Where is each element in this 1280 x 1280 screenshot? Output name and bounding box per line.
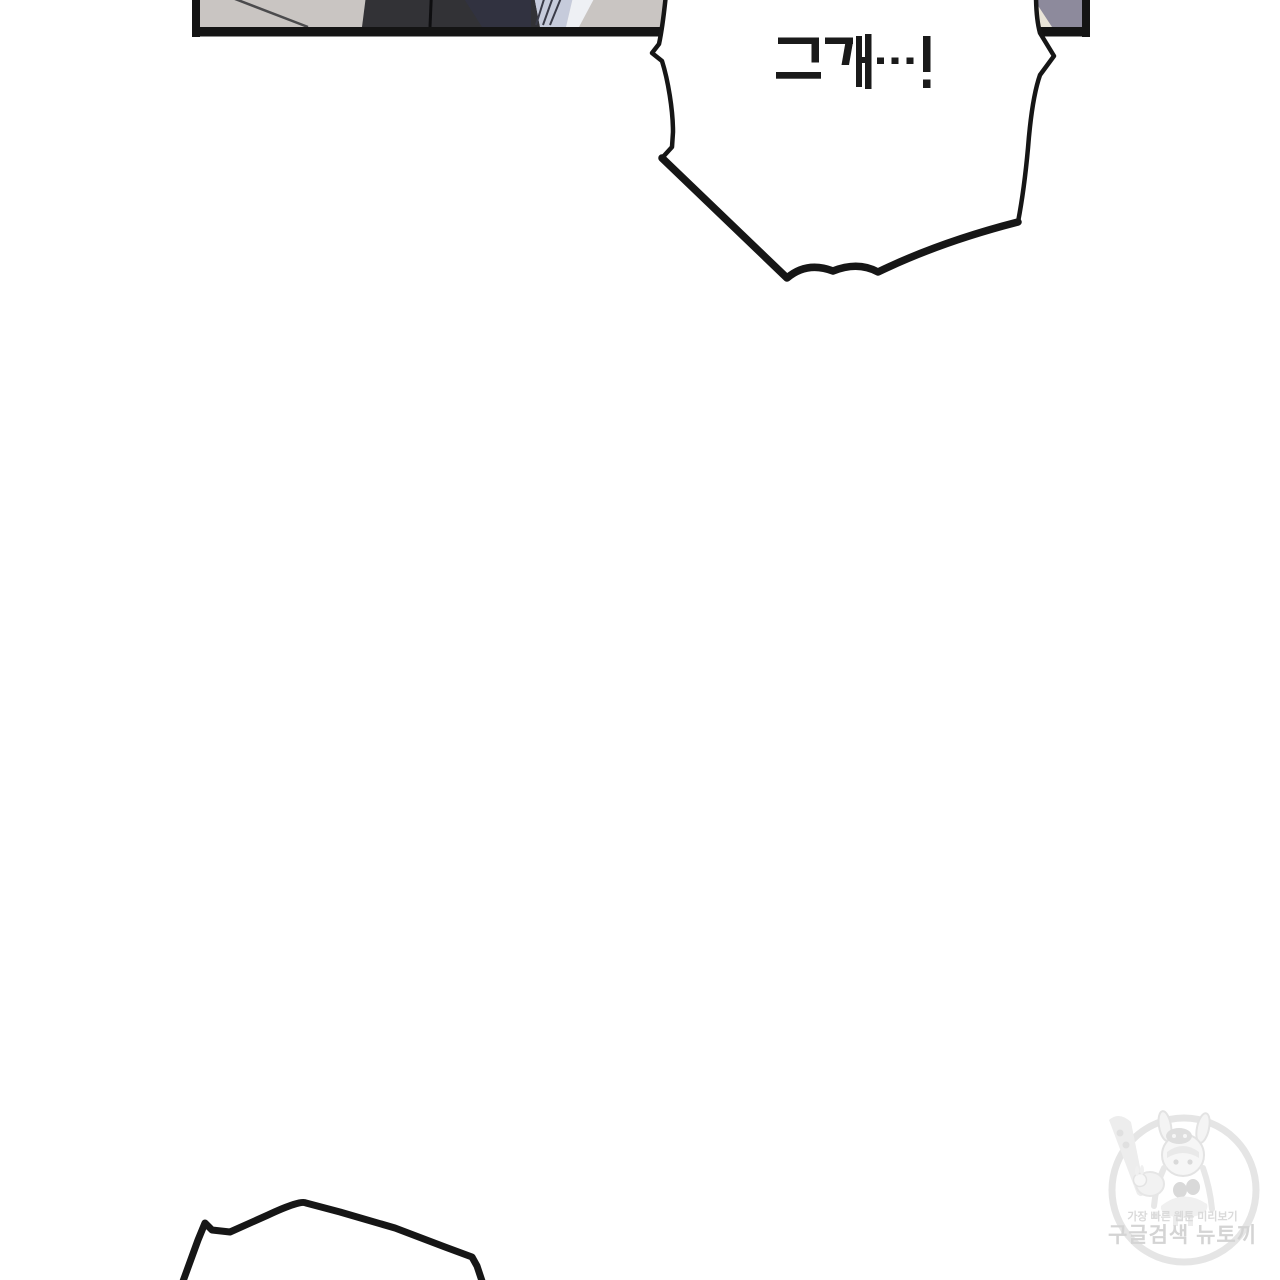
comic-panel-and-bubble-canvas: [0, 0, 1280, 300]
watermark-site-name: 구글검색 뉴토끼: [1095, 1224, 1270, 1248]
hood-bunny-face: [1166, 1128, 1192, 1144]
bottom-bubble-canvas: [0, 1100, 520, 1280]
hood-bunny-eye: [1172, 1134, 1176, 1138]
small-rabbit-ear: [1135, 1166, 1139, 1176]
panel-border-right: [1082, 0, 1090, 37]
mascot-mitten: [1173, 1182, 1187, 1198]
small-rabbit-head: [1134, 1174, 1147, 1187]
mascot-eye: [1187, 1159, 1192, 1164]
mascot-mitten: [1186, 1179, 1200, 1195]
hood-bunny-eye: [1183, 1134, 1187, 1138]
bottom-bubble-outline: [182, 1203, 483, 1280]
mascot-eye: [1173, 1159, 1178, 1164]
carrot-heart: [1123, 1142, 1130, 1149]
panel-border-left: [192, 0, 200, 37]
watermark-tagline: 가장 빠른 웹툰 미리보기: [1095, 1211, 1270, 1224]
carrot-heart: [1117, 1130, 1124, 1137]
small-rabbit-ear: [1140, 1165, 1144, 1175]
watermark-mascot-illustration: [1095, 1110, 1270, 1280]
webtoon-page: { "page": { "background_color": "#ffffff…: [0, 0, 1280, 1280]
site-watermark: 가장 빠른 웹툰 미리보기 구글검색 뉴토끼: [1095, 1110, 1270, 1280]
speech-bubble: [652, 0, 1054, 278]
